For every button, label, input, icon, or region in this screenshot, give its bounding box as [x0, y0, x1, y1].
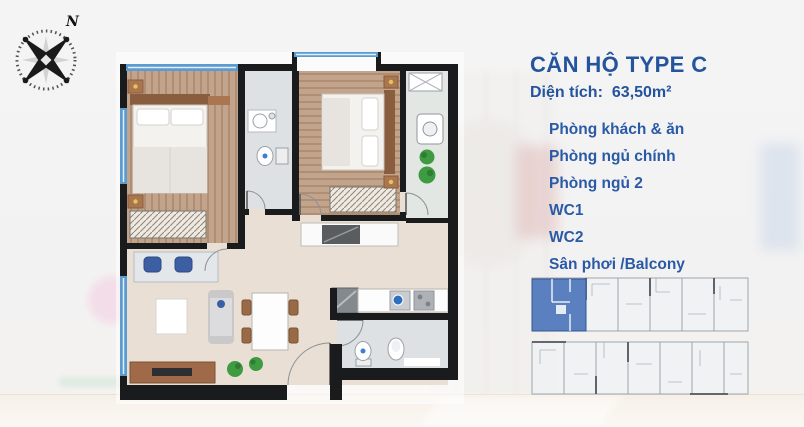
master-bed-headboard [130, 94, 210, 105]
sink-basin [393, 295, 403, 305]
dining-table [252, 293, 288, 350]
plant-leaf [250, 359, 255, 364]
apartment-floor-plan [116, 52, 464, 404]
tv-icon [152, 368, 192, 376]
area-label: Diện tích: [530, 84, 603, 101]
blanket [322, 98, 350, 166]
bedroom2-wardrobe [330, 187, 396, 212]
plant-leaf [427, 170, 433, 176]
dining-chair [242, 328, 251, 343]
pillow [362, 136, 378, 166]
bedroom2-bed-headboard [384, 90, 395, 174]
area-line: Diện tích:63,50m² [530, 84, 800, 102]
dining-chair [289, 300, 298, 315]
pillow [362, 98, 378, 130]
pillow [137, 109, 169, 125]
stove [414, 291, 434, 310]
faucet-icon [269, 113, 275, 119]
compass-north-label: N [65, 14, 80, 30]
sofa-armrest [209, 336, 233, 343]
plant-icon [227, 361, 243, 377]
washer-door [423, 122, 437, 136]
wc1-floor [245, 71, 292, 209]
area-value: 63,50m² [612, 84, 672, 101]
room-list: Phòng khách & ăn Phòng ngủ chính Phòng n… [549, 116, 799, 278]
room-item-wc1: WC1 [549, 197, 799, 224]
burner-icon [426, 302, 431, 307]
plant-icon [249, 357, 263, 371]
lamp-icon [389, 80, 393, 84]
room-item-wc2: WC2 [549, 224, 799, 251]
floorplan-poster: N [0, 0, 804, 427]
toilet-drain-icon [263, 154, 268, 159]
dining-chair [289, 328, 298, 343]
apartment-title: CĂN HỘ TYPE C [530, 52, 800, 78]
lamp-icon [389, 180, 393, 184]
sofa [209, 291, 233, 343]
wc1-sink [253, 114, 267, 128]
room-item-master-bedroom: Phòng ngủ chính [549, 143, 799, 170]
compass-rose-icon: N [4, 6, 88, 102]
wc2-niche [404, 358, 440, 366]
coffee-table [156, 299, 187, 334]
wall-shelf [208, 96, 230, 105]
desk-chair [175, 257, 192, 272]
plant-icon [419, 167, 436, 184]
wc1-toilet-tank [276, 148, 288, 164]
burner-icon [418, 295, 423, 300]
desk-chair [144, 257, 161, 272]
room-item-living-dining: Phòng khách & ăn [549, 116, 799, 143]
room-item-bedroom2: Phòng ngủ 2 [549, 170, 799, 197]
building-key-plan [530, 274, 750, 398]
pillow [171, 109, 203, 125]
dining-chair [242, 300, 251, 315]
wc2-sink-bowl [392, 340, 401, 352]
toilet-drain-icon [361, 349, 366, 354]
lamp-icon [133, 84, 137, 88]
key-plan-highlighted-unit [532, 279, 586, 331]
lamp-icon [133, 199, 137, 203]
master-wardrobe [130, 211, 206, 238]
sofa-armrest [209, 291, 233, 298]
sofa-cushion [217, 300, 225, 308]
plant-leaf [235, 363, 241, 369]
plant-leaf [421, 152, 427, 158]
plant-icon [420, 150, 435, 165]
